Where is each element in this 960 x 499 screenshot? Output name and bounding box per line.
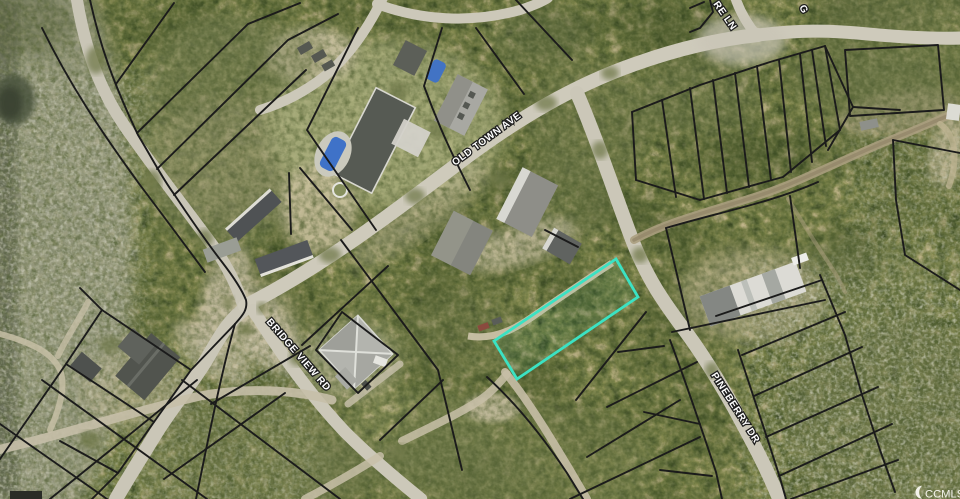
svg-text:CCMLS: CCMLS <box>925 489 960 499</box>
